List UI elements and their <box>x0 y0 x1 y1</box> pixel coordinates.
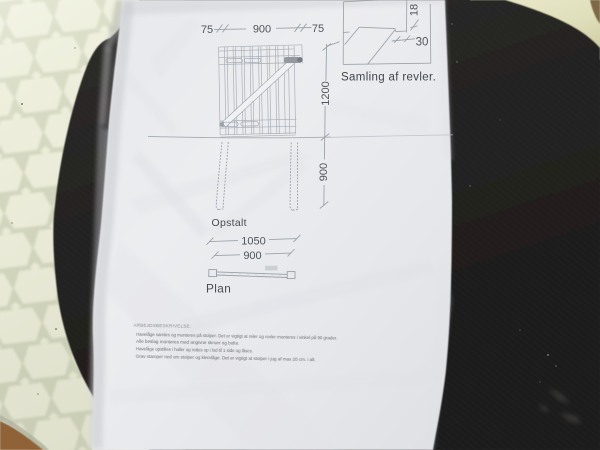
svg-text:Plan: Plan <box>206 282 231 296</box>
svg-text:1050: 1050 <box>241 236 265 248</box>
svg-text:1200: 1200 <box>320 81 332 105</box>
svg-text:900: 900 <box>253 24 271 36</box>
svg-text:Samling af revler.: Samling af revler. <box>341 72 436 84</box>
svg-text:75: 75 <box>312 23 324 35</box>
svg-text:30: 30 <box>416 37 429 49</box>
svg-text:Opstalt: Opstalt <box>212 217 247 229</box>
svg-text:18: 18 <box>409 4 421 16</box>
svg-text:900: 900 <box>318 163 330 181</box>
svg-text:900: 900 <box>243 250 261 262</box>
svg-text:75: 75 <box>201 24 213 36</box>
